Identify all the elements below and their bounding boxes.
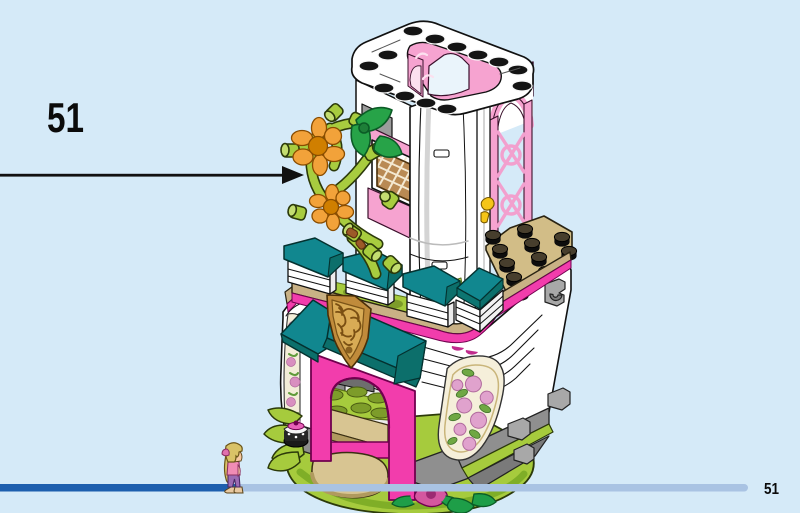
svg-text:51: 51 (764, 481, 779, 498)
svg-text:51: 51 (47, 94, 84, 141)
